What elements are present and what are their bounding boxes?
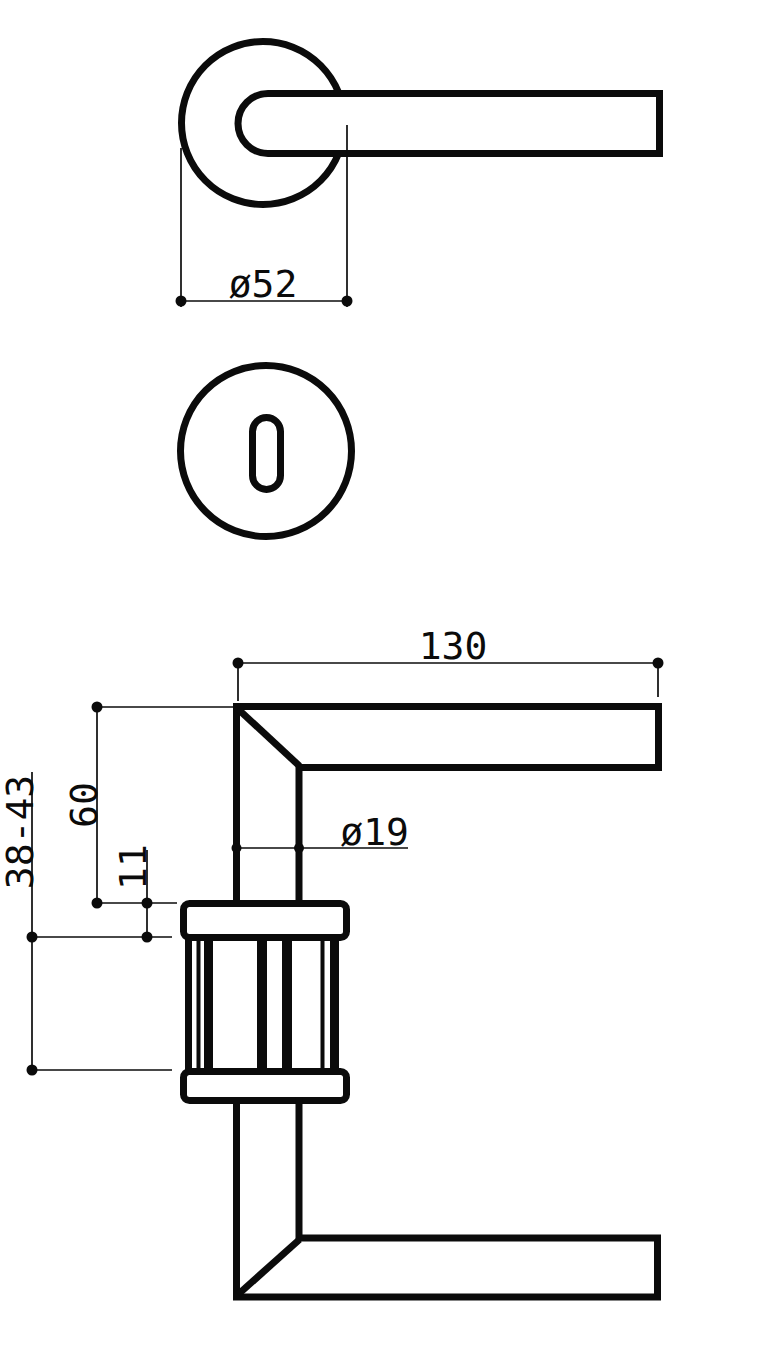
label-lever-height: 60 — [62, 782, 106, 828]
lever-side-upper — [237, 707, 659, 911]
lower-rose-plate — [184, 1072, 347, 1101]
label-rose-diameter: ø52 — [229, 262, 298, 306]
label-neck-diameter: ø19 — [340, 810, 409, 854]
upper-rose-plate — [184, 904, 347, 938]
lever-elbow-chamfer — [238, 1240, 300, 1295]
label-rose-thickness: 11 — [111, 844, 155, 890]
spring-cassette — [185, 935, 339, 1072]
lever-front — [238, 94, 660, 154]
lever-side-lower — [237, 1097, 658, 1297]
technical-drawing-page: ø52 130 — [0, 0, 768, 1366]
dim-dot — [176, 296, 187, 307]
keyhole-slot — [253, 418, 281, 490]
dim-dot — [342, 296, 353, 307]
dim-dot — [142, 898, 153, 909]
side-view: 130 ø19 60 — [0, 624, 664, 1297]
dim-neck-diameter: ø19 — [232, 810, 410, 854]
dim-dot — [27, 1065, 38, 1076]
dim-dot — [92, 702, 103, 713]
dim-dot — [27, 932, 38, 943]
lever-elbow-chamfer — [238, 709, 300, 766]
dim-rose-thickness: 11 — [97, 844, 177, 942]
dim-dot — [294, 843, 304, 853]
door-handle-technical-drawing: ø52 130 — [0, 0, 768, 1366]
label-door-thickness-range: 38-43 — [0, 775, 42, 889]
escutcheon-circle — [181, 366, 352, 537]
label-lever-length: 130 — [419, 624, 488, 668]
front-view: ø52 — [176, 42, 660, 308]
dim-dot — [233, 658, 244, 669]
dim-dot — [653, 658, 664, 669]
escutcheon-view — [181, 366, 352, 537]
dim-dot — [232, 843, 242, 853]
dim-lever-length: 130 — [233, 624, 664, 701]
